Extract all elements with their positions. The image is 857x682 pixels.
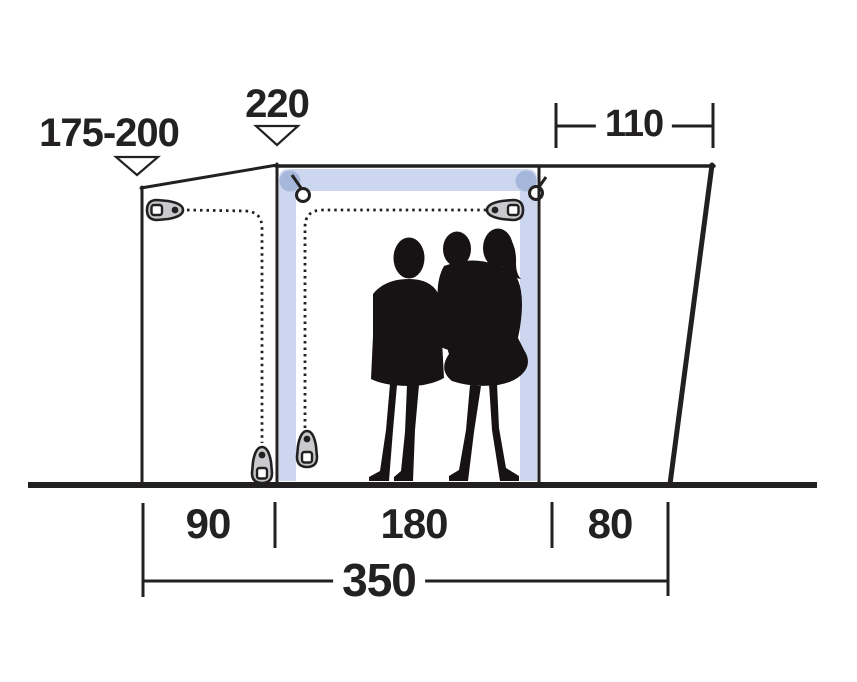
zipper-pull-icon — [487, 200, 523, 220]
dim-label-segment-right: 80 — [588, 503, 633, 545]
zipper-pull-icon — [252, 447, 272, 483]
arrow-down-triangle-icon — [116, 157, 158, 175]
zipper-path-side-panel — [187, 210, 262, 443]
rear-slanted-wall — [670, 165, 712, 484]
dim-label-segment-middle: 180 — [380, 503, 447, 545]
roof-edge-left — [141, 165, 277, 188]
dim-label-segment-left: 90 — [186, 503, 231, 545]
dim-label-total-width: 350 — [333, 557, 425, 603]
arrow-down-triangle-icon — [256, 126, 298, 145]
diagram-drawing — [0, 0, 857, 682]
people-silhouette — [369, 229, 528, 482]
dim-label-top-width: 110 — [596, 105, 672, 143]
dim-label-peak-height: 220 — [245, 84, 309, 124]
tent-dimension-diagram: 175-200 220 110 90 180 80 350 — [0, 0, 857, 682]
dim-label-height-range: 175-200 — [39, 113, 179, 153]
zipper-pull-icon — [147, 200, 183, 220]
zipper-pull-icon — [297, 431, 317, 467]
